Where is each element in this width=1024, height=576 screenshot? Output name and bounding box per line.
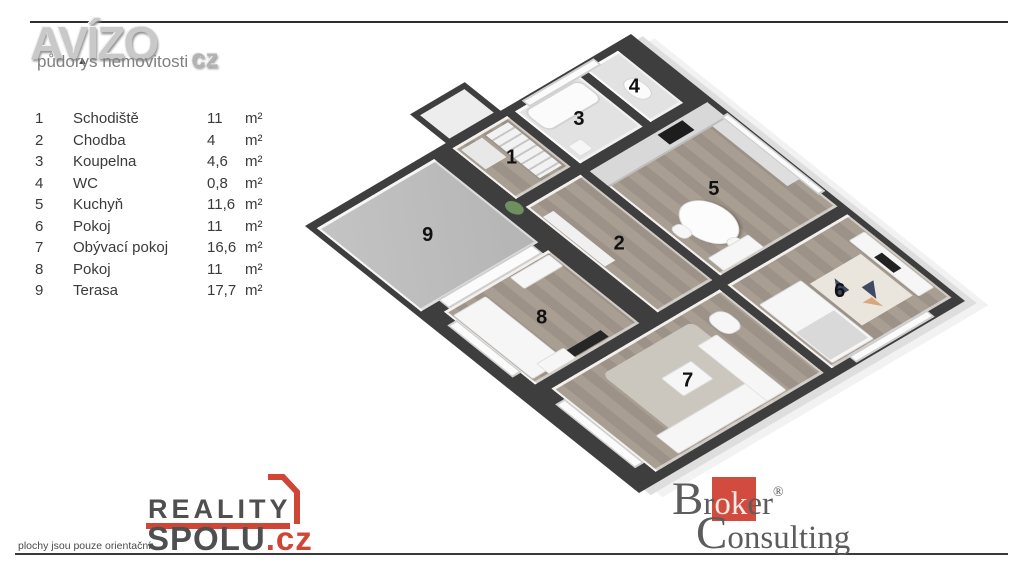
reality-spolu-logo: REALITY SPOLU.cz	[140, 468, 320, 568]
legend-area-unit: m²	[243, 132, 263, 149]
legend-area-unit: m²	[243, 196, 263, 213]
legend-room-number: 7	[35, 239, 73, 256]
legend-row: 3 Koupelna 4,6 m²	[35, 151, 263, 173]
avizo-cz-suffix: cz	[191, 48, 218, 69]
legend-room-area: 11,6	[207, 196, 243, 213]
kitchen-counter-side	[712, 118, 801, 186]
tv-screen	[567, 330, 609, 356]
legend-room-name: Kuchyň	[73, 196, 207, 213]
legend-room-area: 0,8	[207, 175, 243, 192]
legend-room-area: 11	[207, 110, 243, 127]
legend-room-number: 5	[35, 196, 73, 213]
legend-row: 4 WC 0,8 m²	[35, 173, 263, 195]
consulting-text: onsulting	[727, 520, 850, 556]
room-number-label: 5	[708, 177, 719, 200]
legend-room-name: Pokoj	[73, 218, 207, 235]
spolu-word: SPOLU	[147, 520, 266, 557]
legend-room-number: 4	[35, 175, 73, 192]
legend-row: 1 Schodiště 11 m²	[35, 108, 263, 130]
armchair	[704, 308, 745, 337]
area-disclaimer: plochy jsou pouze orientační	[18, 540, 151, 552]
legend-room-number: 9	[35, 282, 73, 299]
spolu-cz-tld: .cz	[266, 520, 313, 557]
consulting-line: Consulting	[696, 510, 850, 557]
legend-room-number: 2	[35, 132, 73, 149]
room-number-label: 6	[834, 280, 845, 303]
legend-room-name: Obývací pokoj	[73, 239, 207, 256]
room-legend: 1 Schodiště 11 m² 2 Chodba 4 m² 3 Koupel…	[35, 108, 263, 302]
legend-room-name: Terasa	[73, 282, 207, 299]
legend-room-name: Chodba	[73, 132, 207, 149]
legend-room-area: 11	[207, 261, 243, 278]
legend-area-unit: m²	[243, 110, 263, 127]
room-number-label: 9	[422, 224, 433, 247]
room-number-label: 2	[613, 232, 624, 255]
legend-row: 8 Pokoj 11 m²	[35, 259, 263, 281]
legend-room-area: 4	[207, 132, 243, 149]
legend-room-name: WC	[73, 175, 207, 192]
legend-room-number: 1	[35, 110, 73, 127]
legend-room-area: 11	[207, 218, 243, 235]
legend-room-name: Pokoj	[73, 261, 207, 278]
legend-room-number: 6	[35, 218, 73, 235]
floorplan-base: 9 8 7 1 2 3	[305, 34, 965, 493]
registered-mark: ®	[773, 485, 784, 500]
legend-row: 9 Terasa 17,7 m²	[35, 280, 263, 302]
spolu-text: SPOLU.cz	[147, 520, 313, 558]
top-divider-line	[30, 21, 1008, 23]
room-number-label: 1	[506, 146, 517, 169]
consulting-initial: C	[696, 507, 727, 559]
broker-consulting-logo: Broker® Consulting	[672, 470, 932, 565]
plan-subtitle-row: půdorys nemovitosti cz	[37, 48, 219, 72]
legend-area-unit: m²	[243, 282, 263, 299]
plan-subtitle: půdorys nemovitosti	[37, 52, 188, 72]
legend-row: 2 Chodba 4 m²	[35, 130, 263, 152]
potted-plant	[501, 199, 527, 218]
legend-room-number: 3	[35, 153, 73, 170]
legend-area-unit: m²	[243, 239, 263, 256]
legend-area-unit: m²	[243, 175, 263, 192]
legend-room-number: 8	[35, 261, 73, 278]
legend-row: 7 Obývací pokoj 16,6 m²	[35, 237, 263, 259]
legend-area-unit: m²	[243, 153, 263, 170]
legend-room-area: 4,6	[207, 153, 243, 170]
room-number-label: 3	[573, 108, 584, 131]
room-number-label: 8	[536, 306, 547, 329]
legend-room-name: Schodiště	[73, 110, 207, 127]
legend-room-area: 17,7	[207, 282, 243, 299]
legend-room-area: 16,6	[207, 239, 243, 256]
legend-row: 5 Kuchyň 11,6 m²	[35, 194, 263, 216]
room-number-label: 4	[629, 75, 640, 98]
room-number-label: 7	[682, 369, 693, 392]
legend-row: 6 Pokoj 11 m²	[35, 216, 263, 238]
legend-area-unit: m²	[243, 261, 263, 278]
washbasin	[567, 138, 593, 156]
legend-area-unit: m²	[243, 218, 263, 235]
legend-room-name: Koupelna	[73, 153, 207, 170]
